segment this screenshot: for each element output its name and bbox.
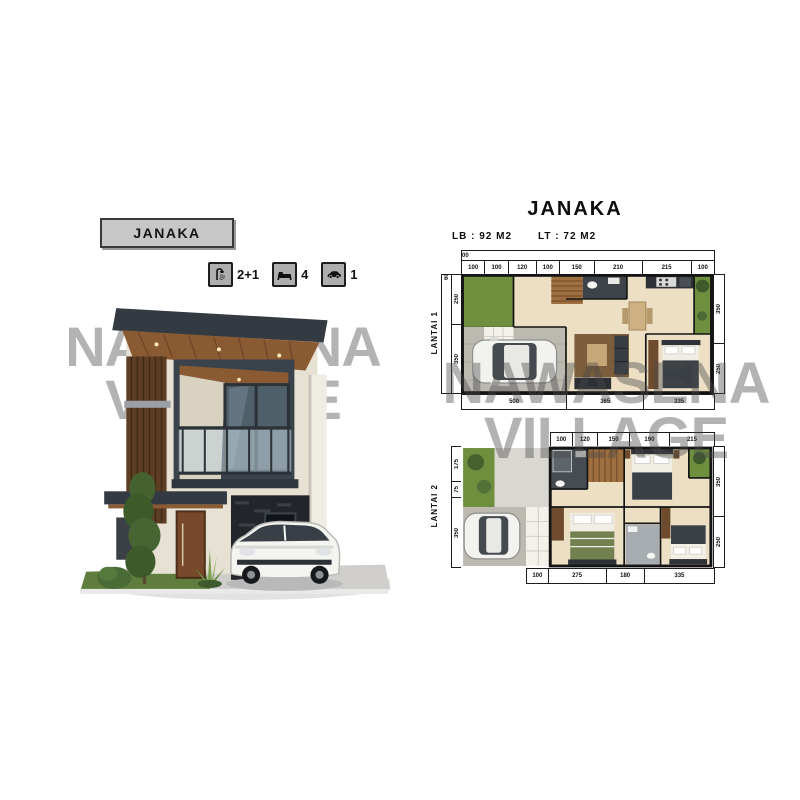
dimension-label: 100 [527, 569, 548, 583]
dimension-label: 250 [714, 343, 724, 393]
balcony [172, 359, 299, 488]
house-name-tag: JANAKA [100, 218, 234, 248]
dimension-label: 350 [714, 275, 724, 343]
house-render [78, 282, 390, 604]
door-canopy [104, 491, 227, 504]
floor-label: LANTAI 2 [428, 446, 441, 566]
bedroom-1 [648, 340, 700, 389]
dimension-label: 100 [484, 261, 507, 275]
dimension-label: 100 [691, 261, 714, 275]
dimension-label: 210 [594, 261, 642, 275]
dimension-label: 215 [642, 261, 691, 275]
dimension-label: 215 [669, 433, 714, 447]
tile-path [526, 507, 550, 566]
dimension-label: 335 [643, 395, 714, 409]
floorplan-2-drawing [461, 446, 713, 568]
kitchen [646, 276, 694, 288]
building-area: LB : 92 M2 [452, 231, 512, 242]
bathroom-2 [552, 449, 588, 489]
brochure-canvas: NAWASENA VILLAGE JANAKA 2+1 [0, 0, 800, 800]
floorplan-lantai-1: LANTAI 1 600 250350 1200 100100120100150… [428, 250, 728, 410]
dimension-label: 500 [462, 395, 566, 409]
stairs-2 [587, 449, 624, 482]
garden-front [463, 276, 513, 327]
bush [97, 567, 131, 589]
downlight [217, 347, 221, 351]
dimension-label: 100 [551, 433, 572, 447]
dimension-label: 150 [597, 433, 629, 447]
dimension-label: 250 [714, 516, 724, 567]
downlight [155, 342, 159, 346]
bathroom-count: 2+1 [237, 267, 259, 282]
canopy-roof [495, 448, 551, 507]
garden-side [694, 276, 711, 334]
garden-below [463, 448, 495, 507]
dimension-label: 350 [714, 447, 724, 516]
plan-title: JANAKA [430, 198, 720, 221]
bathroom-1 [583, 276, 627, 299]
dim-right-segments: 350250 [713, 446, 725, 568]
floorplan-1-drawing [461, 274, 713, 394]
car-topview [473, 338, 557, 386]
bedroom-2 [624, 449, 679, 499]
dimension-label: 365 [566, 395, 643, 409]
garden-strip-2 [689, 449, 710, 477]
floor-label: LANTAI 1 [428, 274, 441, 392]
dim-right-segments: 350250 [713, 274, 725, 394]
dimension-label: 180 [606, 569, 644, 583]
dimension-label: 120 [508, 261, 536, 275]
bathroom-3 [626, 525, 660, 565]
bedroom-count: 4 [301, 267, 308, 282]
house-name-text: JANAKA [133, 225, 200, 241]
front-door [177, 511, 205, 577]
dim-bottom-segments: 500365335 [461, 394, 715, 410]
floorplan-lantai-2: LANTAI 2 17575350 100120150190215 350250… [428, 432, 728, 582]
dimension-label: 100 [536, 261, 559, 275]
glass-railing [179, 429, 292, 473]
area-info: LB : 92 M2 LT : 72 M2 [452, 231, 596, 242]
carport-count: 1 [350, 267, 357, 282]
land-area: LT : 72 M2 [538, 231, 596, 242]
dimension-label: 100 [462, 261, 484, 275]
dimension-label: 150 [559, 261, 594, 275]
dimension-label: 275 [548, 569, 606, 583]
dimension-label: 335 [644, 569, 714, 583]
dimension-label: 120 [572, 433, 598, 447]
dim-bottom-segments: 100275180335 [526, 568, 715, 584]
dimension-label: 190 [629, 433, 669, 447]
driveway-below [463, 507, 526, 566]
downlight [277, 353, 281, 357]
